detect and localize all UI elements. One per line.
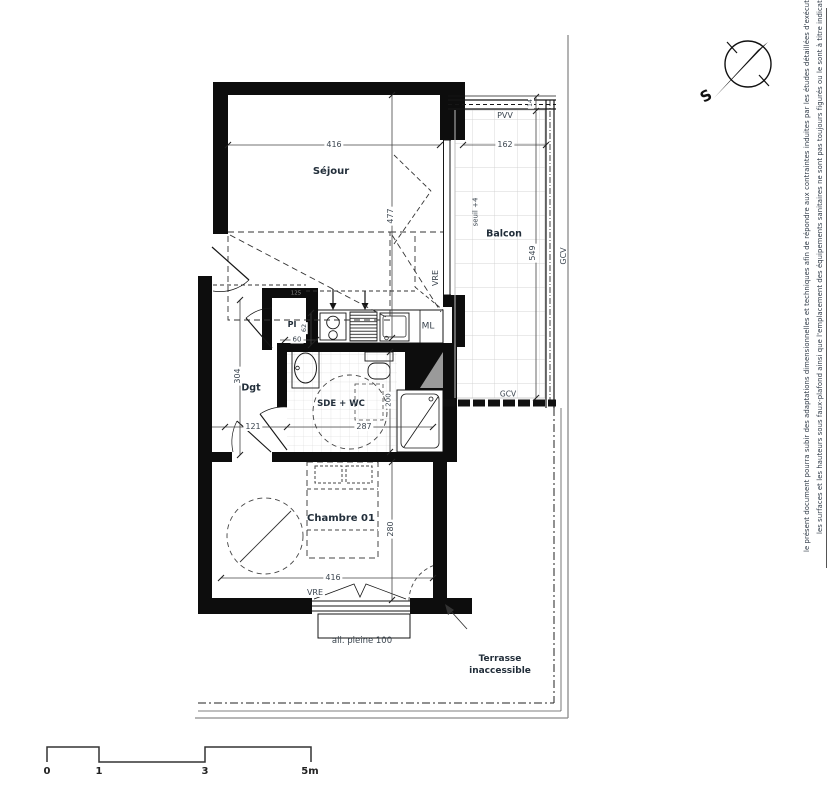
dim-balcon-depth: 549 bbox=[529, 243, 537, 262]
dim-dgt-width: 121 bbox=[243, 423, 262, 431]
disclaimer-line-1: le présent document pourra subir des ada… bbox=[803, 0, 811, 552]
vent-arrows-icon bbox=[330, 289, 369, 310]
dim-chambre-depth: 280 bbox=[387, 519, 395, 538]
dim-balcon-width: 162 bbox=[495, 141, 514, 149]
kitchen-sink-icon bbox=[380, 313, 409, 341]
label-vre-sejour: VRE bbox=[432, 268, 440, 288]
label-pvv: PVV bbox=[497, 112, 513, 120]
dashed-lines bbox=[213, 155, 443, 320]
bed-icon bbox=[307, 462, 378, 558]
kitchen-counter bbox=[313, 289, 443, 343]
bedroom-window bbox=[312, 584, 410, 638]
compass-icon bbox=[714, 41, 771, 98]
scale-tick-5m: 5m bbox=[301, 766, 318, 777]
dim-sde-depth: 200 bbox=[386, 391, 393, 408]
dim-balcon-rail: 14 bbox=[528, 97, 534, 109]
dim-sde-width: 287 bbox=[354, 423, 373, 431]
bathroom-door bbox=[260, 407, 287, 450]
shower-icon bbox=[397, 390, 443, 452]
label-pi: PI bbox=[288, 321, 297, 329]
dim-placard-niche: 125 bbox=[291, 291, 302, 297]
technical-shaft bbox=[405, 347, 443, 390]
balcony-door-swing bbox=[394, 155, 431, 244]
scale-tick-3: 3 bbox=[202, 766, 209, 777]
dim-sejour-depth: 477 bbox=[387, 206, 395, 225]
dim-sejour-width: 416 bbox=[324, 141, 343, 149]
sejour-balcony-window bbox=[443, 140, 451, 295]
label-gcv-balcony: GCV bbox=[500, 390, 516, 398]
label-seuil: seuil +4 bbox=[473, 198, 480, 227]
dim-placard-width: 60 bbox=[291, 337, 304, 344]
dim-dgt-depth: 304 bbox=[234, 366, 242, 385]
room-label-chambre: Chambre 01 bbox=[307, 514, 375, 524]
kitchen-oven-icon bbox=[320, 313, 346, 340]
scale-tick-1: 1 bbox=[96, 766, 103, 777]
dim-chambre-width: 416 bbox=[323, 574, 342, 582]
room-label-balcon: Balcon bbox=[486, 229, 522, 239]
room-label-sde-wc: SDE + WC bbox=[317, 400, 365, 409]
label-gcv-right: GCV bbox=[560, 247, 568, 264]
scale-bar bbox=[47, 747, 311, 762]
room-label-terrasse: Terrasse inaccessible bbox=[469, 653, 531, 677]
label-allege: all. pleine 100 bbox=[332, 637, 392, 646]
floor-plan-drawing bbox=[0, 0, 829, 800]
dim-placard-depth: 62 bbox=[301, 322, 308, 334]
scale-tick-0: 0 bbox=[44, 766, 51, 777]
kitchen-cooktop-icon bbox=[350, 312, 377, 341]
disclaimer-line-2: les surfaces et les hauteurs sous faux-p… bbox=[816, 0, 824, 534]
wardrobe-circle-icon bbox=[227, 498, 303, 574]
room-label-dgt: Dgt bbox=[241, 383, 260, 393]
room-label-sejour: Séjour bbox=[313, 167, 349, 177]
label-ml: ML bbox=[422, 323, 435, 332]
label-vre-chambre: VRE bbox=[305, 589, 325, 597]
walls bbox=[198, 82, 472, 614]
floor-plan-page: Séjour 416 477 PVV 162 14 seuil +4 Balco… bbox=[0, 0, 829, 800]
